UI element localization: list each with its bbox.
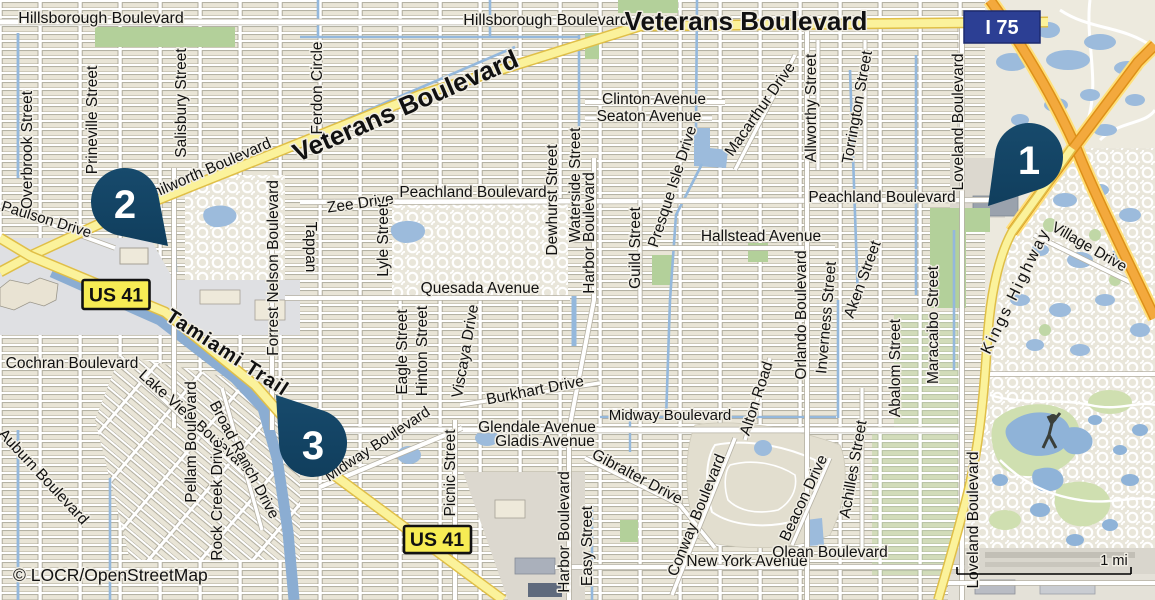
svg-text:US 41: US 41 [410,529,464,551]
svg-text:Salisbury Street: Salisbury Street [173,48,190,158]
svg-text:Peachland Boulevard: Peachland Boulevard [399,184,546,201]
svg-text:Loveland Boulevard: Loveland Boulevard [950,53,967,190]
svg-text:Gladis Avenue: Gladis Avenue [495,433,595,450]
svg-text:I 75: I 75 [985,17,1018,39]
svg-text:Hallstead Avenue: Hallstead Avenue [701,228,821,245]
svg-text:Peachland Boulevard: Peachland Boulevard [808,189,955,206]
svg-text:Cochran Boulevard: Cochran Boulevard [6,355,139,372]
svg-text:Rock Creek Drive: Rock Creek Drive [209,439,226,560]
svg-text:Eagle Street: Eagle Street [394,309,411,395]
svg-text:Veterans Boulevard: Veterans Boulevard [625,6,868,36]
svg-text:Overbrook Street: Overbrook Street [19,90,36,209]
svg-text:Ferdon Circle: Ferdon Circle [309,41,326,134]
svg-text:Hinton Street: Hinton Street [414,305,431,396]
svg-text:Abalom Street: Abalom Street [887,318,904,417]
svg-text:Quesada Avenue: Quesada Avenue [421,280,540,297]
svg-text:Seaton Avenue: Seaton Avenue [597,108,702,125]
svg-text:Prineville Street: Prineville Street [84,65,101,174]
svg-text:Olean Boulevard: Olean Boulevard [772,544,887,561]
svg-text:Lyle Street: Lyle Street [375,203,392,277]
svg-text:US 41: US 41 [89,285,143,307]
svg-text:Picnic Street: Picnic Street [442,429,459,517]
svg-text:Easy Street: Easy Street [579,505,596,586]
svg-text:2: 2 [114,183,136,227]
svg-text:Guild Street: Guild Street [627,206,644,289]
svg-text:Harbor Boulevard: Harbor Boulevard [581,172,598,293]
svg-text:Loveland Boulevard: Loveland Boulevard [965,451,982,588]
svg-text:Pellam Boulevard: Pellam Boulevard [183,381,200,502]
svg-text:Harbor Boulevard: Harbor Boulevard [556,471,573,592]
svg-text:Hillsborough Boulevard: Hillsborough Boulevard [18,10,183,27]
svg-text:Midway Boulevard: Midway Boulevard [609,407,732,424]
svg-text:3: 3 [302,424,324,468]
svg-text:Clinton Avenue: Clinton Avenue [602,91,706,108]
svg-text:Allworthy Street: Allworthy Street [803,53,820,162]
svg-text:Tappan: Tappan [302,222,319,273]
svg-text:Hillsborough Boulevard: Hillsborough Boulevard [463,12,628,29]
svg-text:1: 1 [1018,139,1040,183]
svg-text:Maracaibo Street: Maracaibo Street [925,265,942,384]
svg-text:© LOCR/OpenStreetMap: © LOCR/OpenStreetMap [13,565,208,585]
svg-text:1 mi: 1 mi [1100,553,1127,569]
svg-text:Forrest Nelson Boulevard: Forrest Nelson Boulevard [265,180,282,356]
svg-text:Orlando Boulevard: Orlando Boulevard [793,250,810,379]
